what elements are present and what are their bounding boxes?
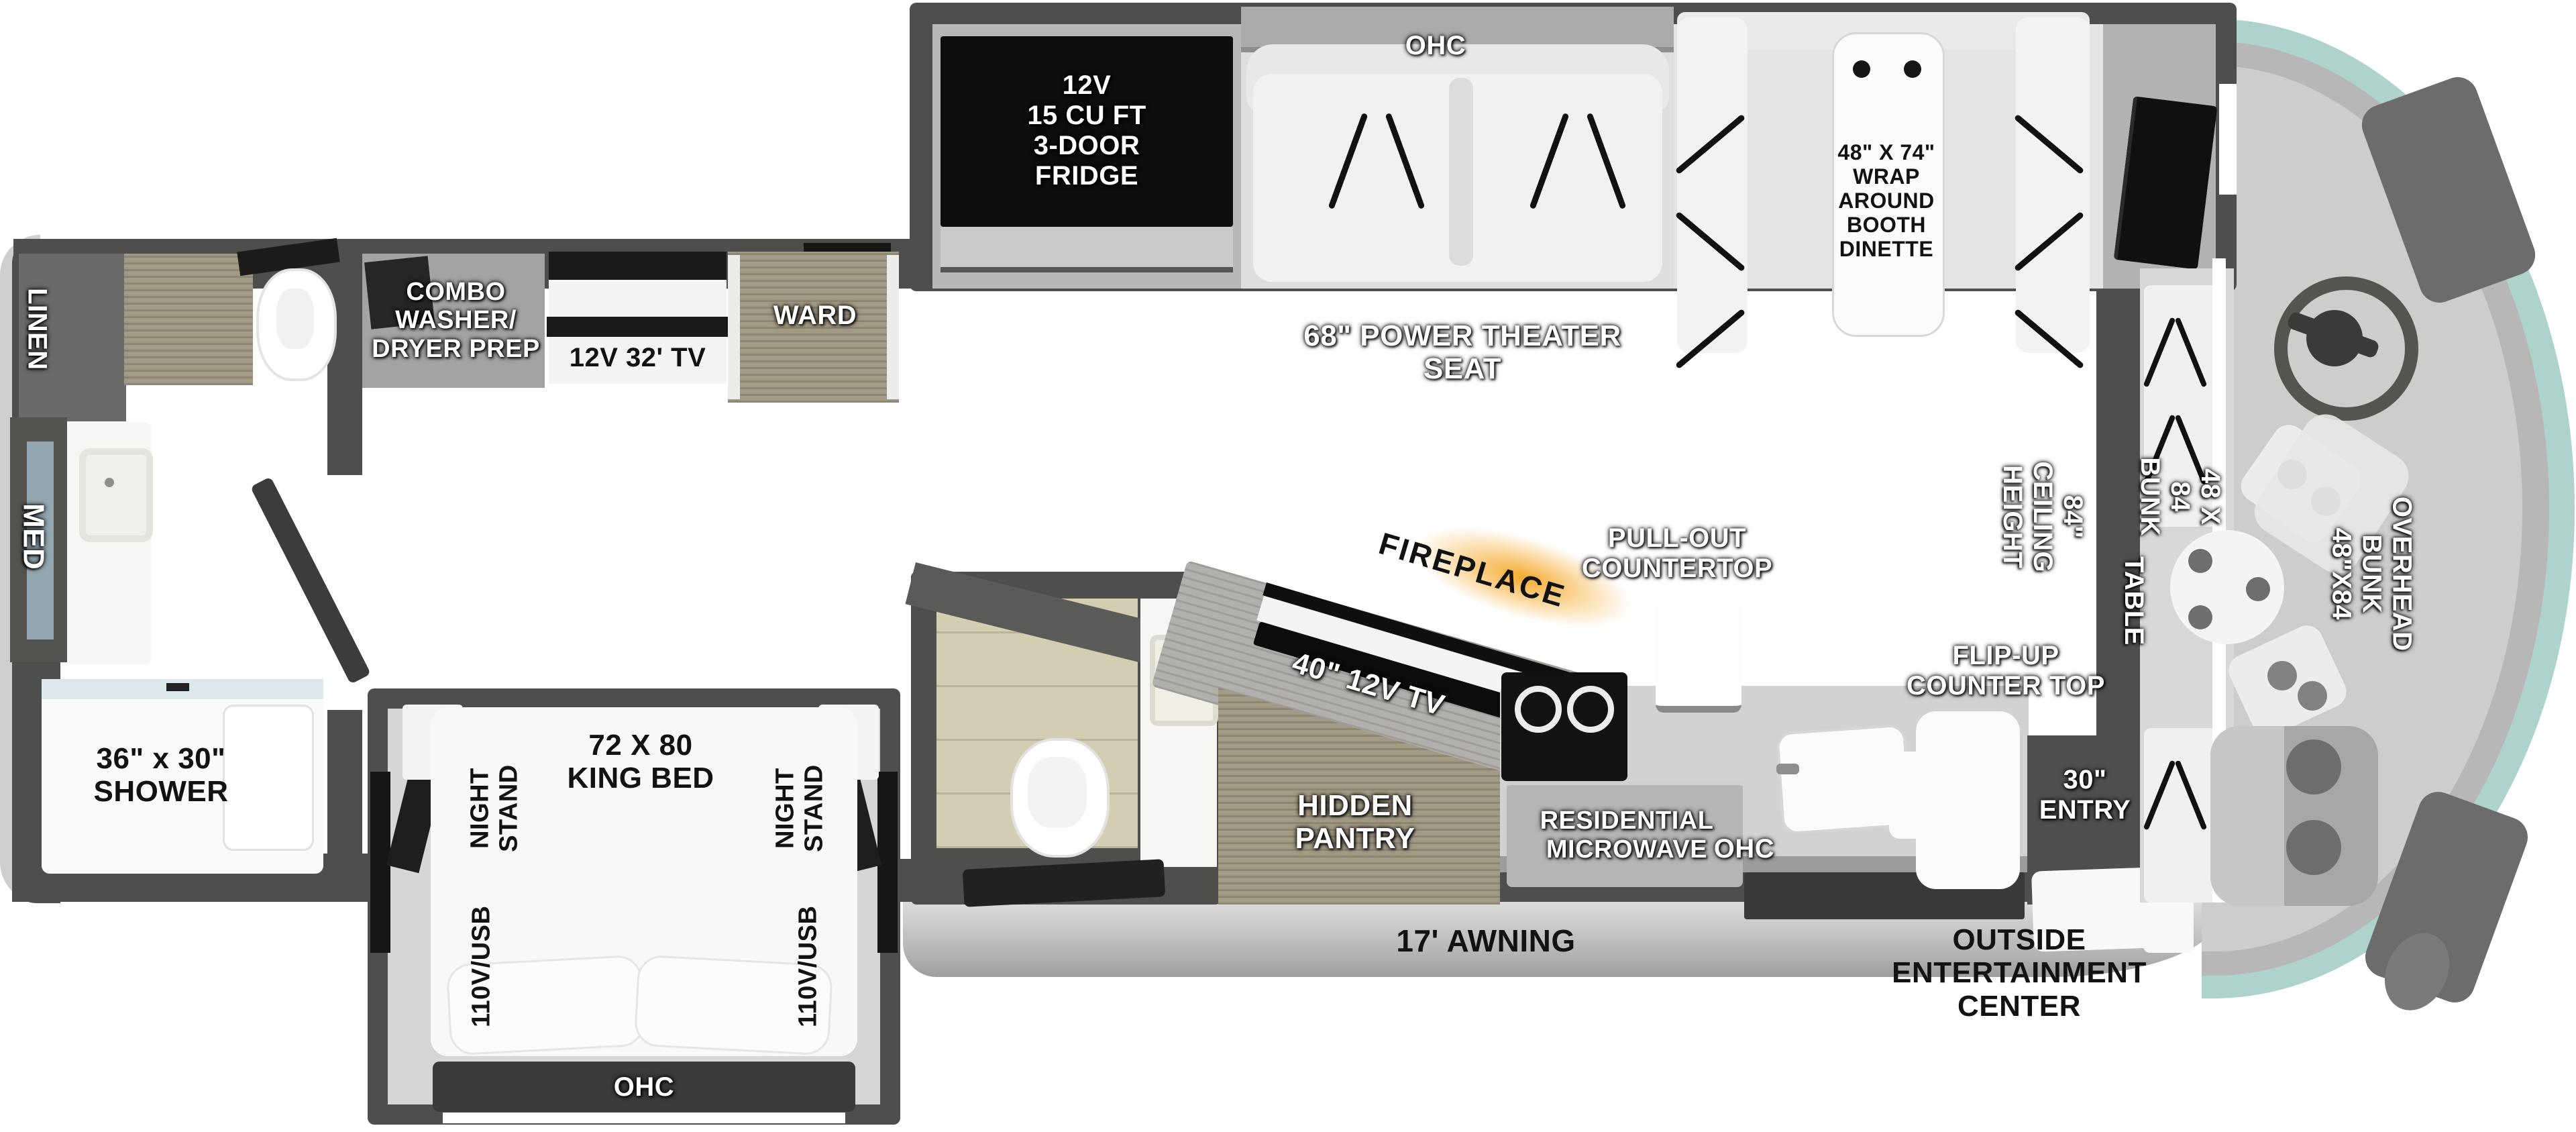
galley-side-window [2219, 84, 2237, 195]
passenger-seat-dot [2286, 739, 2341, 794]
bed-pillow-right [634, 954, 834, 1056]
passenger-seat-side [2210, 726, 2284, 906]
rear-faucet [105, 478, 114, 487]
bunk-room-wall [2096, 239, 2143, 740]
microwave-cabinet [1507, 781, 1743, 887]
bed-slide-step [443, 1113, 845, 1123]
bedroom-tv-shelf [547, 317, 728, 337]
dinette-left-bench [1677, 17, 1748, 353]
passenger-seat-dot [2286, 820, 2341, 875]
cab-table-dot [2188, 605, 2212, 629]
dinette-right-bench [2016, 17, 2090, 353]
fridge-cabinet [941, 227, 1233, 270]
rv-floorplan: 12V 15 CU FT 3-DOOR FRIDGE OHC 68" POWER… [0, 0, 2576, 1132]
linen-cabinet [19, 254, 126, 421]
bath-divider-wall-lower [327, 710, 362, 855]
exterior-sidewall-band [903, 902, 2223, 977]
bedroom-tv-shelf-top [549, 252, 727, 280]
cab-chair-dot [2267, 661, 2297, 690]
wardrobe [728, 252, 899, 403]
flip-up-countertop [1916, 711, 2020, 889]
fridge-cabinet-edge [941, 267, 1233, 272]
cab-chair-dot [2298, 681, 2327, 711]
kitchen-faucet [1776, 764, 1799, 774]
shower-drain [166, 683, 189, 691]
table-grommet [1904, 60, 1921, 78]
theater-armrest [1449, 78, 1473, 266]
cab-table-dot [2188, 549, 2212, 573]
rear-toilet-seat [276, 289, 314, 349]
bottom-bunk [2144, 728, 2218, 903]
mid-bath-toilet-seat [1028, 757, 1087, 828]
rear-bath-counter [124, 254, 253, 385]
cab-table-dot [2246, 577, 2270, 601]
flip-up-countertop-tab [1889, 752, 1926, 839]
cooktop [1501, 672, 1627, 781]
rear-sink [79, 448, 153, 542]
table-grommet [1853, 60, 1870, 78]
bed-pillow-left [446, 954, 646, 1056]
washer-dryer-item [364, 256, 435, 329]
cooktop-burner [1567, 686, 1614, 733]
dinette-table [1832, 32, 1945, 337]
med-mirror [27, 442, 54, 639]
wardrobe-side-right [887, 255, 899, 399]
cooktop-burner [1515, 686, 1562, 733]
pull-out-countertop [1656, 605, 1741, 713]
wardrobe-side-left [728, 255, 740, 399]
fridge [941, 36, 1233, 227]
shower-seat [223, 705, 314, 851]
bed-ohc-cabinet [433, 1062, 855, 1112]
